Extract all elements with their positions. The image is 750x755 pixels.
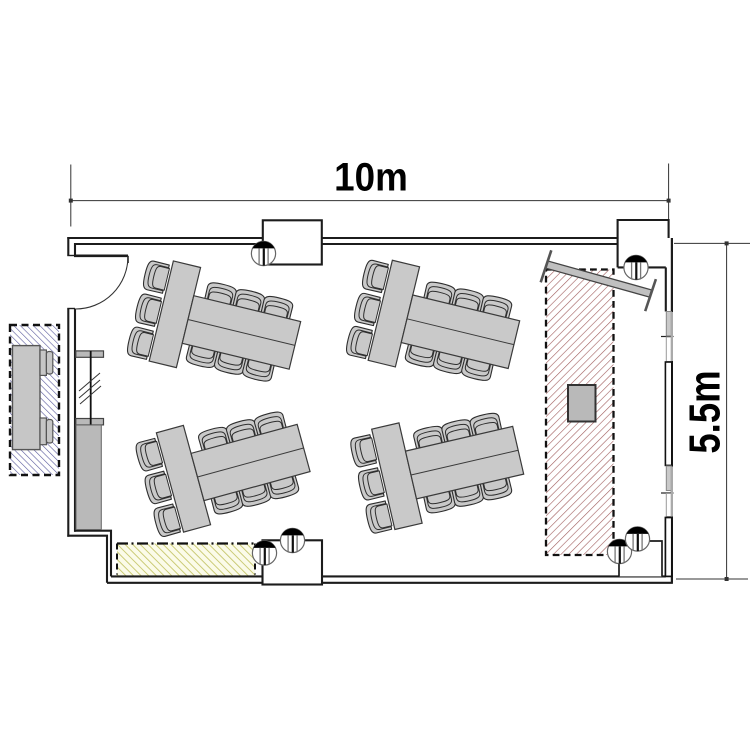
- svg-text:5.5m: 5.5m: [680, 370, 729, 453]
- svg-text:10m: 10m: [334, 155, 408, 200]
